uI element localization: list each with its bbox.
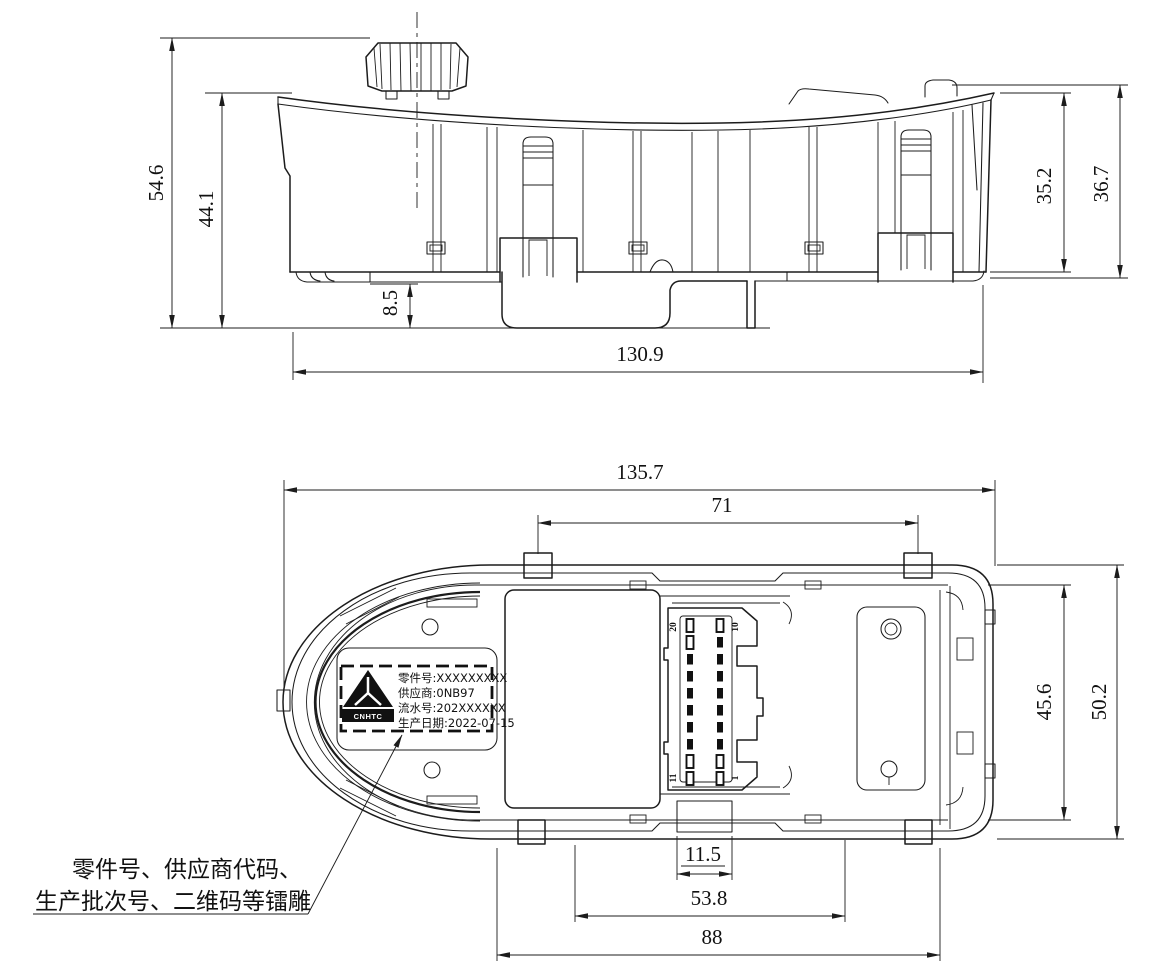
cnhtc-logo-icon: CNHTC [342,670,394,722]
dim-135-7: 135.7 [616,460,663,484]
dim-130-9: 130.9 [616,342,663,366]
pin-label-11: 11 [669,773,679,782]
connector: 20 10 11 1 [630,581,821,832]
cover-hole-top-outer [881,619,901,639]
label-text: 零件号:XXXXXXXXX 供应商:0NB97 流水号:202XXXXXX 生产… [398,671,515,730]
top-panel [278,93,994,130]
latch-windows [427,242,823,254]
label-callout: 零件号、供应商代码、 生产批次号、二维码等镭雕 [33,735,402,915]
latch-foot-left [500,238,577,282]
drawing-svg: 54.6 44.1 8.5 130.9 35.2 36.7 [0,0,1171,971]
knob [366,12,468,210]
dim-total-height: 54.6 [144,38,370,328]
cover-hole-bottom [881,761,897,777]
callout-line1: 零件号、供应商代码、 [72,857,302,883]
engineering-drawing-canvas: 54.6 44.1 8.5 130.9 35.2 36.7 [0,0,1171,971]
dim-total-height-bottom: 50.2 [997,565,1124,839]
label-date: 生产日期:2022-07-15 [398,716,515,730]
dim-36-7: 36.7 [1089,166,1113,203]
callout-leader-line [308,735,402,914]
switch-base-plate [505,590,660,808]
dim-body-height: 44.1 [194,93,292,328]
screw-boss-top [422,619,438,635]
left-foot [296,272,502,282]
logo-text: CNHTC [354,712,383,721]
snap-slider-left [523,137,553,277]
cover-hole-top-inner [885,623,897,635]
connector-housing [664,608,763,790]
latch-foot-right [878,233,953,282]
label-supplier: 供应商:0NB97 [398,686,475,700]
dim-50-2: 50.2 [1087,684,1111,721]
dim-11-5: 11.5 [685,842,721,866]
right-end-details [940,586,995,829]
mounting-tab-bottom-left [518,820,545,844]
dim-total-width-bottom: 135.7 [284,460,995,692]
pin-label-20: 20 [669,622,679,632]
connector-brackets [630,581,821,832]
dim-71: 71 [712,493,733,517]
pin-label-10: 10 [731,622,741,632]
dim-54-6: 54.6 [144,165,168,202]
dim-skirt-height: 8.5 [370,284,418,328]
screw-boss-bottom [424,762,440,778]
bottom-view: CNHTC 零件号:XXXXXXXXX 供应商:0NB97 流水号:202XXX… [277,460,1124,961]
pin-label-1: 1 [731,775,741,780]
callout-line2: 生产批次号、二维码等镭雕 [35,889,311,915]
panel-lips [789,80,957,104]
label-serial: 流水号:202XXXXXX [398,701,506,715]
dim-35-2: 35.2 [1032,168,1056,205]
top-view: 54.6 44.1 8.5 130.9 35.2 36.7 [144,12,1128,383]
connector-pins [687,619,724,785]
dim-right-inner: 35.2 [990,93,1071,272]
snap-slider-right [901,130,931,270]
right-cover-plate [857,607,925,790]
dim-44-1: 44.1 [194,191,218,228]
connector-lock-tab [677,801,732,832]
label-part-no: 零件号:XXXXXXXXX [398,671,507,685]
dim-53-8: 53.8 [691,886,728,910]
body-outline [278,100,991,272]
dim-connector-tab: 11.5 [677,836,732,880]
dim-88: 88 [702,925,723,949]
mounting-tabs [518,553,932,844]
dim-45-6: 45.6 [1032,684,1056,721]
dim-tab-spacing: 71 [538,493,918,554]
dim-8-5: 8.5 [378,290,402,316]
dim-inner-height: 45.6 [988,585,1071,820]
connector-shroud [502,260,755,328]
body-ribs [433,110,963,272]
label-plate: CNHTC 零件号:XXXXXXXXX 供应商:0NB97 流水号:202XXX… [337,648,515,750]
mounting-tab-bottom-right [905,820,932,844]
